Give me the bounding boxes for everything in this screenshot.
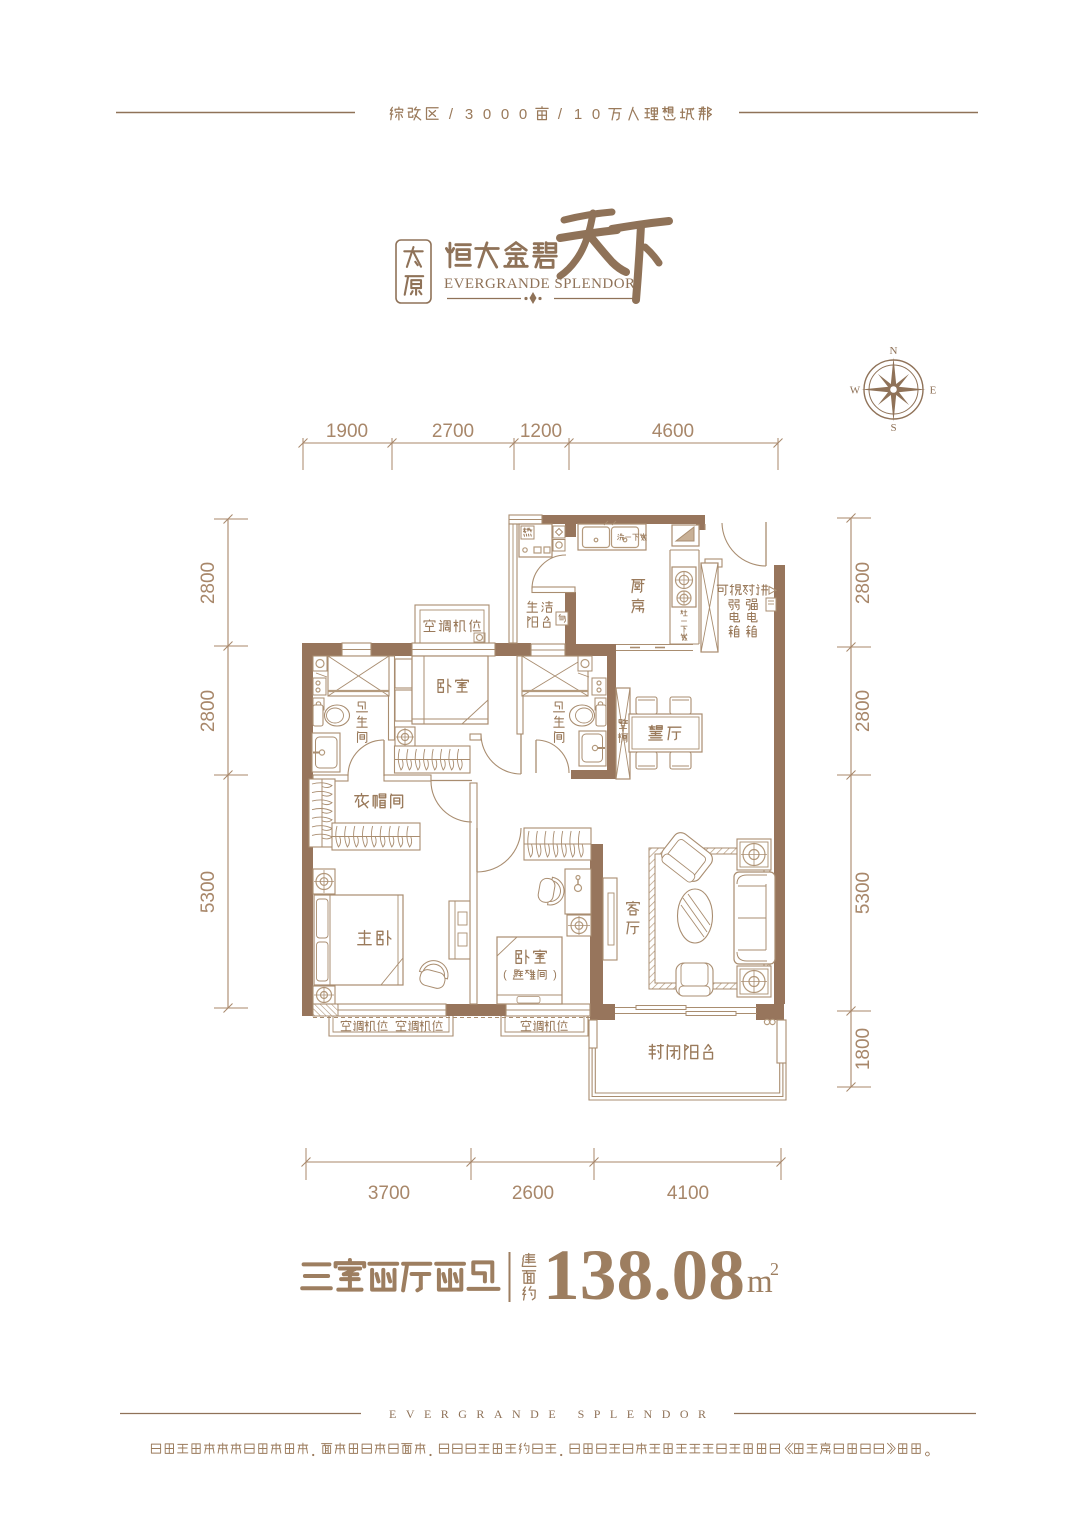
svg-text:S: S <box>890 422 896 434</box>
svg-text:0: 0 <box>501 106 509 123</box>
svg-text:1: 1 <box>574 106 582 123</box>
svg-text:EVERGRANDE SPLENDOR: EVERGRANDE SPLENDOR <box>444 276 635 292</box>
svg-text:1200: 1200 <box>520 421 562 442</box>
svg-text:1800: 1800 <box>853 1028 874 1070</box>
svg-text:N: N <box>890 345 898 357</box>
svg-text:2800: 2800 <box>198 562 219 604</box>
svg-text:2800: 2800 <box>853 562 874 604</box>
svg-text:(: ( <box>503 969 507 981</box>
svg-text:4600: 4600 <box>652 421 694 442</box>
svg-text:4100: 4100 <box>667 1183 709 1204</box>
svg-text:2600: 2600 <box>512 1183 554 1204</box>
svg-text:0: 0 <box>483 106 491 123</box>
svg-text:E: E <box>930 385 937 397</box>
svg-text:138.08: 138.08 <box>543 1235 745 1315</box>
svg-text:2700: 2700 <box>432 421 474 442</box>
svg-text:2: 2 <box>770 1259 779 1279</box>
svg-text:): ) <box>553 969 557 981</box>
svg-text:W: W <box>850 385 861 397</box>
svg-text:5300: 5300 <box>198 871 219 913</box>
svg-text:1900: 1900 <box>326 421 368 442</box>
svg-text:0: 0 <box>592 106 600 123</box>
svg-text:5300: 5300 <box>853 872 874 914</box>
svg-text:2800: 2800 <box>198 690 219 732</box>
svg-text:3700: 3700 <box>368 1183 410 1204</box>
svg-text:0: 0 <box>519 106 527 123</box>
svg-text:3: 3 <box>465 106 473 123</box>
svg-text:2800: 2800 <box>853 690 874 732</box>
